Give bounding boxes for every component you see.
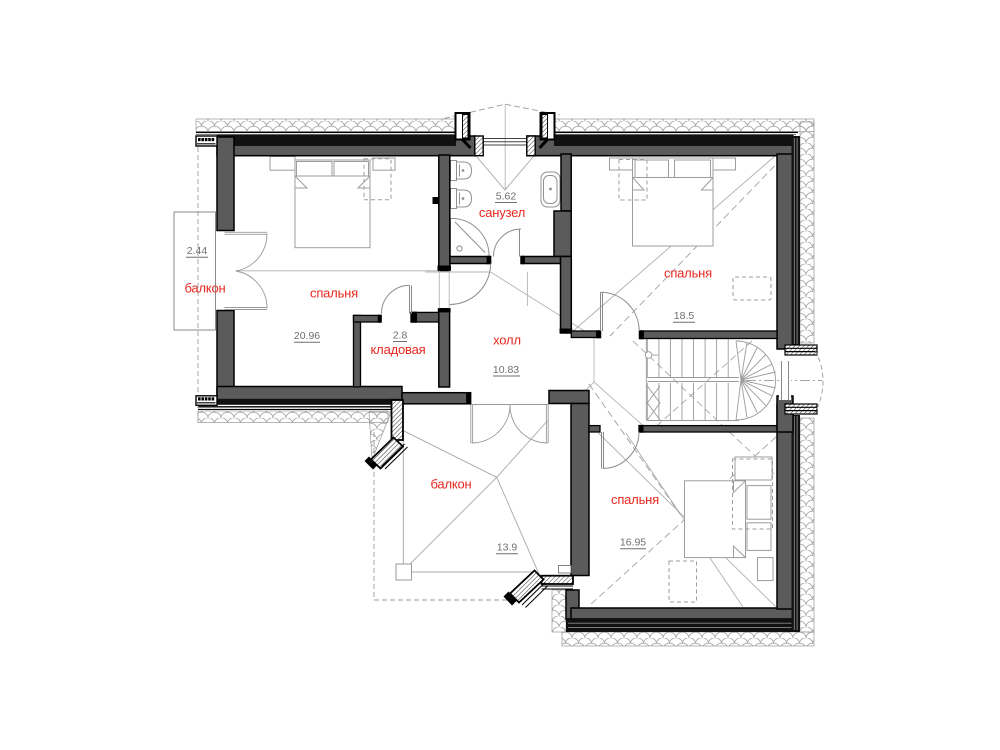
svg-text:20.96: 20.96 — [294, 330, 320, 342]
svg-text:10.83: 10.83 — [493, 364, 519, 376]
svg-text:16.95: 16.95 — [620, 537, 646, 549]
svg-text:спальня: спальня — [611, 492, 659, 507]
svg-text:спальня: спальня — [664, 266, 712, 281]
svg-text:санузел: санузел — [479, 205, 525, 220]
svg-text:балкон: балкон — [430, 477, 471, 492]
svg-text:2.8: 2.8 — [393, 329, 408, 341]
svg-text:кладовая: кладовая — [371, 342, 426, 357]
svg-text:5.62: 5.62 — [496, 190, 517, 202]
svg-text:холл: холл — [493, 333, 521, 348]
svg-text:спальня: спальня — [310, 286, 358, 301]
svg-text:13.9: 13.9 — [497, 542, 518, 554]
svg-text:18.5: 18.5 — [674, 310, 695, 322]
svg-text:2.44: 2.44 — [187, 245, 208, 257]
svg-text:балкон: балкон — [184, 281, 225, 296]
